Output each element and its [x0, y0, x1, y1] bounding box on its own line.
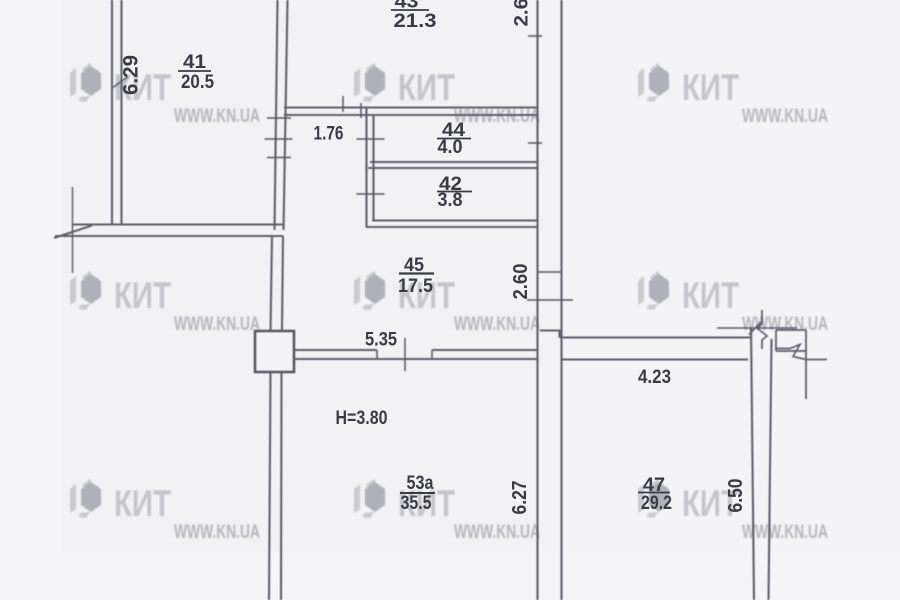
svg-text:29.2: 29.2	[641, 493, 672, 514]
svg-text:КИТ: КИТ	[682, 67, 739, 108]
svg-text:2.60: 2.60	[512, 0, 533, 27]
svg-text:21.3: 21.3	[394, 11, 437, 32]
svg-text:6.27: 6.27	[509, 481, 531, 515]
svg-text:20.5: 20.5	[181, 72, 214, 93]
svg-text:1.76: 1.76	[314, 124, 344, 145]
svg-text:41: 41	[183, 52, 206, 73]
svg-text:3.8: 3.8	[438, 190, 463, 211]
svg-text:4.23: 4.23	[638, 367, 671, 388]
svg-text:6.50: 6.50	[725, 479, 747, 513]
svg-text:5.35: 5.35	[365, 330, 397, 351]
svg-text:2.60: 2.60	[510, 264, 532, 300]
svg-text:17.5: 17.5	[398, 276, 433, 297]
svg-text:35.5: 35.5	[401, 493, 432, 514]
svg-text:53а: 53а	[407, 473, 434, 494]
svg-text:Н=3.80: Н=3.80	[336, 408, 388, 429]
svg-text:WWW.KN.UA: WWW.KN.UA	[742, 106, 828, 127]
svg-text:4.0: 4.0	[438, 137, 463, 158]
svg-text:6.29: 6.29	[120, 55, 143, 95]
svg-text:WWW.KN.UA: WWW.KN.UA	[454, 106, 540, 127]
svg-text:КИТ: КИТ	[398, 67, 455, 108]
svg-text:WWW.KN.UA: WWW.KN.UA	[174, 106, 260, 127]
